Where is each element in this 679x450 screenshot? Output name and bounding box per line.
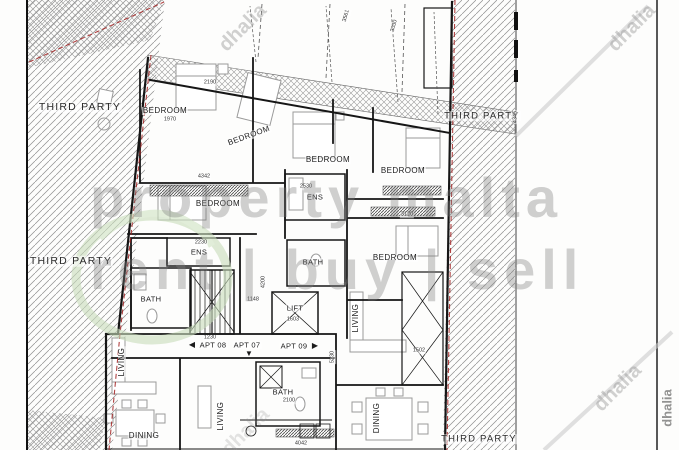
room-label-dining-1: DINING	[373, 402, 381, 434]
floor-plan-page: THIRD PARTY THIRD PARTY THIRD PARTY THIR…	[0, 0, 679, 450]
dim-1148: 1148	[246, 297, 260, 303]
room-label-bedroom-4: BEDROOM	[380, 167, 426, 175]
apt-09-arrow: ▶	[311, 342, 319, 350]
room-label-bath-3: BATH	[272, 388, 295, 396]
dim-1603: 1603	[286, 317, 300, 323]
room-label-lift: LIFT	[286, 304, 305, 312]
third-party-label-left: THIRD PARTY	[29, 256, 113, 267]
apt-08-arrow: ◀	[188, 341, 196, 349]
dim-2100: 2100	[282, 398, 296, 404]
third-party-label-topright: THIRD PARTY	[443, 111, 521, 121]
dim-5230: 5230	[330, 350, 336, 364]
dim-4342: 4342	[197, 174, 211, 180]
dim-1502: 1502	[412, 348, 426, 354]
dim-3561: 3561	[342, 8, 351, 23]
apt-07-label: APT 07	[233, 341, 262, 349]
dim-3120: 3120	[400, 212, 414, 218]
room-label-bedroom-5: BEDROOM	[195, 200, 241, 208]
dim-4200: 4200	[261, 275, 267, 289]
room-label-living-3: LIVING	[217, 401, 225, 432]
dim-4042: 4042	[294, 441, 308, 447]
room-label-dining-2: DINING	[128, 432, 160, 440]
room-label-ens-1: ENS	[306, 193, 324, 201]
third-party-label-topleft: THIRD PARTY	[38, 102, 122, 113]
room-label-bedroom-6: BEDROOM	[372, 254, 418, 262]
dim-1970: 1970	[163, 117, 177, 123]
room-label-living-2: LIVING	[352, 303, 360, 334]
room-label-bedroom-1: BEDROOM	[142, 107, 188, 115]
dim-2530: 2530	[299, 184, 313, 190]
room-label-bedroom-3: BEDROOM	[305, 156, 351, 164]
third-party-label-bottomright: THIRD PARTY	[440, 434, 518, 444]
room-label-living-1: LIVING	[118, 347, 126, 378]
room-label-ens-2: ENS	[190, 248, 208, 256]
dim-3030: 3030	[390, 18, 399, 33]
apt-09-label: APT 09	[280, 342, 309, 350]
dim-1230: 1230	[203, 335, 217, 341]
dim-2230: 2230	[194, 240, 208, 246]
apt-08-label: APT 08	[199, 341, 228, 349]
room-label-bath-2: BATH	[302, 258, 325, 266]
labels-layer: THIRD PARTY THIRD PARTY THIRD PARTY THIR…	[0, 0, 679, 450]
dim-4345: 4345	[513, 110, 519, 124]
apt-07-arrow: ▼	[244, 350, 254, 358]
room-label-bedroom-2: BEDROOM	[226, 124, 272, 147]
room-label-bath-1: BATH	[140, 295, 163, 303]
dim-2190: 2190	[203, 80, 217, 86]
